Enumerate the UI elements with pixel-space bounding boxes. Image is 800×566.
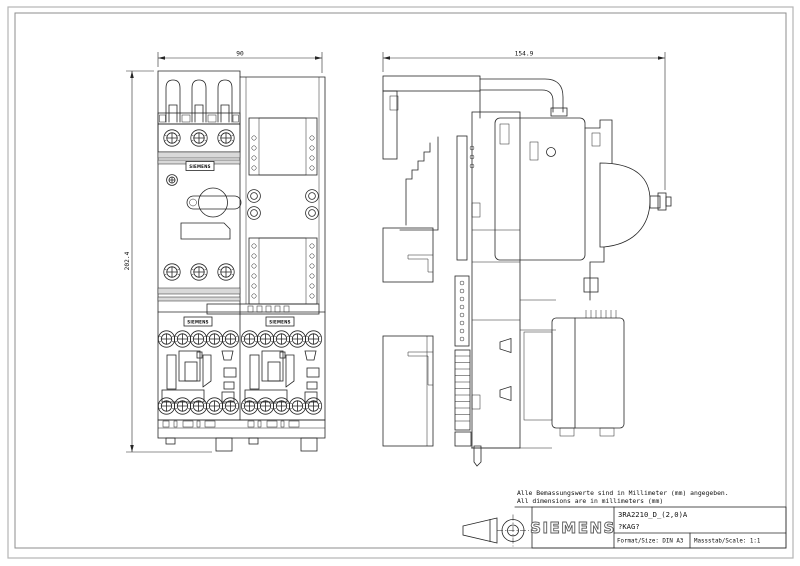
dim-value-front-height: 202.4 (124, 251, 131, 270)
side-rotary-knob (590, 163, 671, 300)
title-block: SIEMENS 3RA2210_D_(2,0)A ?KAG? Format/Si… (515, 507, 786, 548)
side-busbar-clamps (383, 228, 433, 446)
rotary-handle-knob (199, 188, 228, 217)
front-mid-terminals (158, 264, 240, 301)
front-top-terminals (158, 124, 240, 152)
projection-symbol-icon (463, 515, 529, 547)
note-line-de: Alle Bemassungswerte sind in Millimeter … (517, 489, 729, 497)
cad-drawing-canvas: SIEMENS (0, 0, 800, 566)
title-format: Format/Size: DIN A3 (617, 539, 684, 545)
dimension-side-depth: 154.9 (383, 51, 665, 191)
contactor-mechanism (162, 351, 236, 402)
device-brand-label: SIEMENS (186, 162, 214, 171)
drawing-notes: Alle Bemassungswerte sind in Millimeter … (517, 489, 729, 505)
rotary-handle-lever (187, 196, 241, 209)
label-window (181, 223, 230, 239)
note-line-en: All dimensions are in millimeters (mm) (517, 497, 663, 505)
dimension-front-width: 90 (158, 51, 322, 74)
dimension-front-height: 202.4 (124, 71, 212, 452)
title-code: ?KAG? (618, 522, 640, 531)
device-brand-text: SIEMENS (189, 164, 210, 169)
siemens-logo: SIEMENS (530, 519, 616, 537)
front-contactors (158, 312, 325, 414)
dim-value-front-width: 90 (236, 51, 244, 58)
title-scale: Massstab/Scale: 1:1 (694, 539, 761, 545)
side-view (383, 76, 671, 466)
front-link-module (246, 77, 319, 304)
link-comb-strip (207, 304, 319, 314)
side-contactor-block (471, 278, 624, 448)
title-model: 3RA2210_D_(2,0)A (618, 510, 688, 519)
side-mount-column (455, 136, 481, 466)
front-breaker-face (167, 175, 241, 239)
side-breaker-block (495, 118, 612, 260)
sheet-frame (8, 7, 793, 558)
drawing-sheet: SIEMENS (0, 0, 800, 566)
front-bottom-rail (158, 420, 325, 451)
front-top-pins (158, 80, 240, 124)
dim-value-side-depth: 154.9 (515, 51, 534, 58)
front-view: SIEMENS (158, 71, 325, 451)
side-main-body (472, 112, 520, 448)
